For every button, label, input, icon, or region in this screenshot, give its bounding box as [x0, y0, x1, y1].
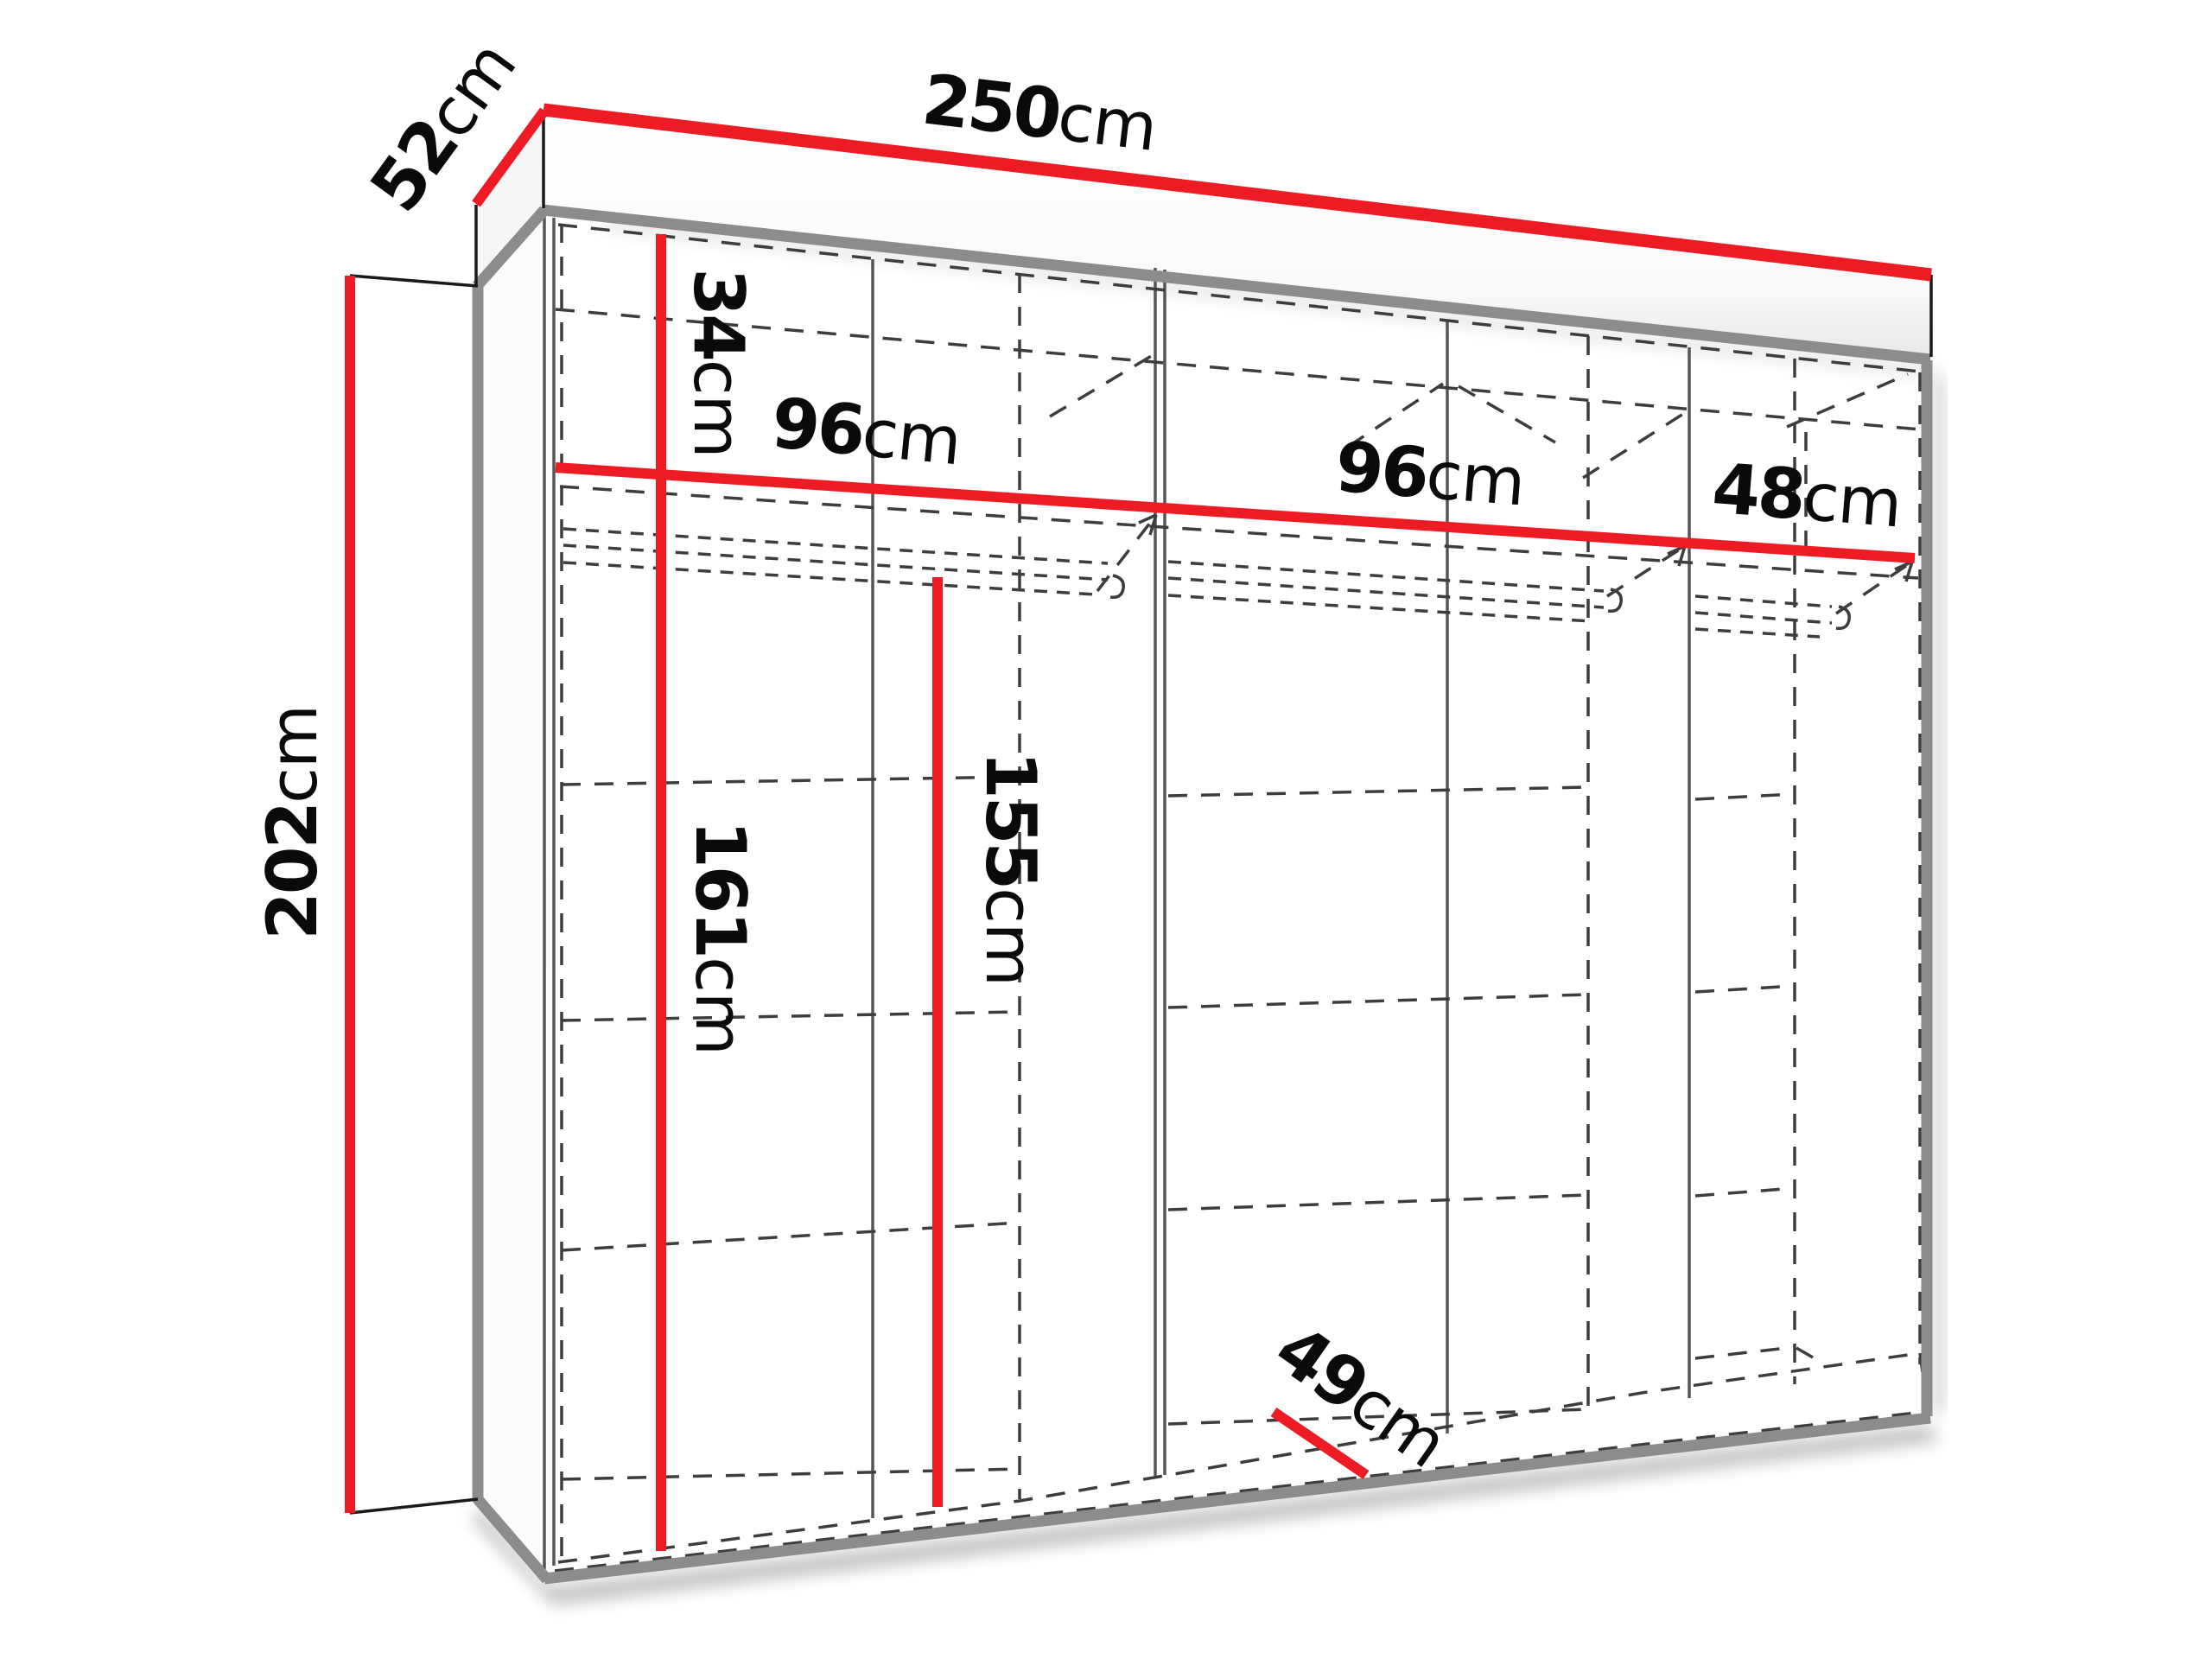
dimension-ticks	[350, 276, 478, 1513]
wardrobe-dimension-diagram: 250cm 52cm 202cm 34cm 96cm 96cm 48cm 161…	[0, 0, 2212, 1659]
label-section-middle: 96cm	[1332, 427, 1528, 522]
hanging-rods	[563, 515, 1912, 637]
label-hanging-height: 155cm	[970, 751, 1051, 986]
label-section-left: 96cm	[768, 383, 964, 481]
rod-end-hook	[1110, 575, 1123, 597]
label-interior-depth: 49cm	[1261, 1309, 1462, 1484]
label-width: 250cm	[918, 59, 1161, 167]
label-interior-left-height: 161cm	[680, 820, 760, 1055]
label-height: 202cm	[252, 705, 333, 940]
label-top-shelf: 34cm	[678, 268, 759, 457]
diagram-canvas: 250cm 52cm 202cm 34cm 96cm 96cm 48cm 161…	[0, 0, 2212, 1659]
label-section-right: 48cm	[1709, 448, 1904, 543]
